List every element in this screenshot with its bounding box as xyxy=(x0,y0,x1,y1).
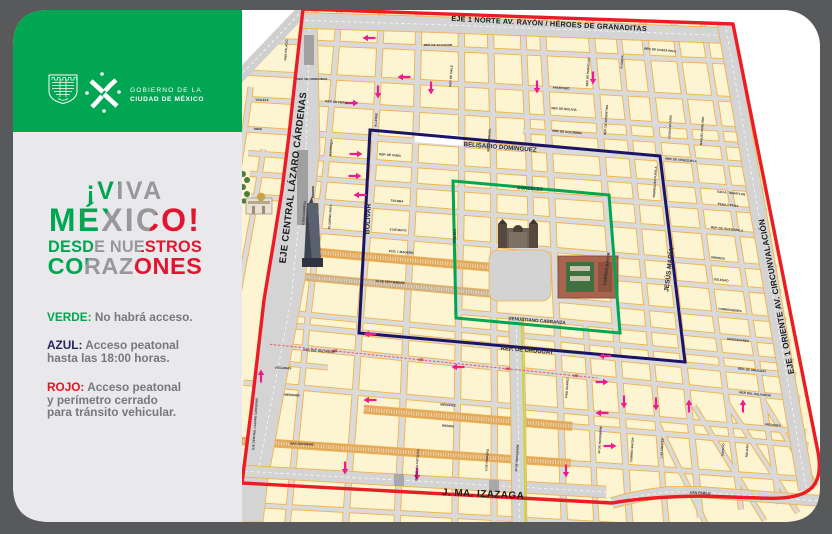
svg-text:MB: MB xyxy=(573,374,579,378)
svg-text:VIZCAINAS: VIZCAINAS xyxy=(275,366,292,371)
svg-text:PALMA: PALMA xyxy=(452,229,457,243)
svg-text:VIOLETA: VIOLETA xyxy=(255,98,269,102)
svg-text:MB: MB xyxy=(505,367,511,371)
svg-text:GOBIERNO DE LA: GOBIERNO DE LA xyxy=(130,87,202,94)
svg-text:MESONES: MESONES xyxy=(284,393,300,398)
svg-text:REP. DE ECUADOR: REP. DE ECUADOR xyxy=(424,43,453,47)
svg-text:MB: MB xyxy=(418,358,424,362)
svg-text:MINA: MINA xyxy=(254,127,263,131)
svg-text:CIUDAD DE MÉXICO: CIUDAD DE MÉXICO xyxy=(130,94,204,103)
svg-text:REP. DE HONDURAS: REP. DE HONDURAS xyxy=(297,77,328,81)
